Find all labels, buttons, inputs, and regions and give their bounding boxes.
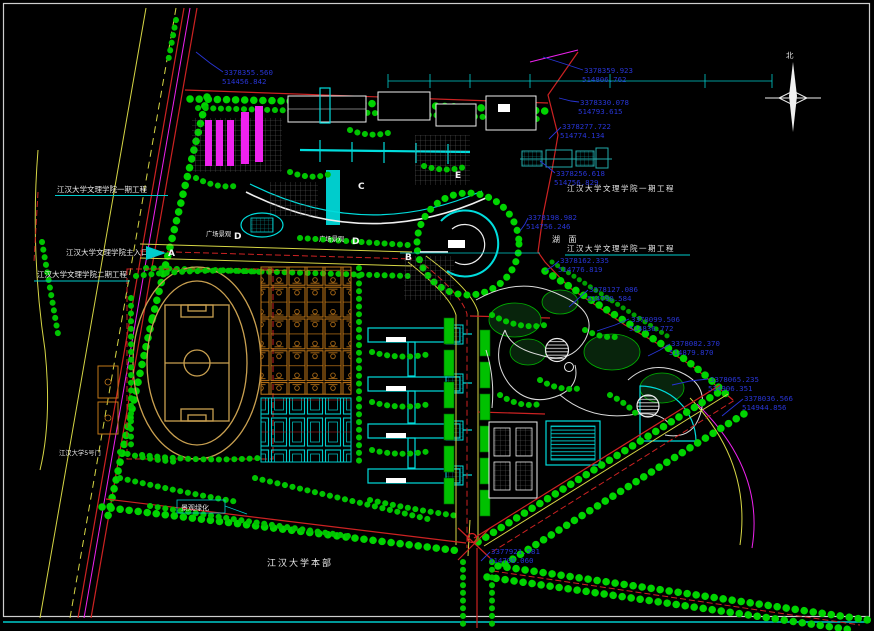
volleyball-courts [261,398,351,462]
marker-e: E [455,171,461,181]
marker-c: C [358,182,365,192]
svg-text:3378162.335: 3378162.335 [560,256,609,265]
plaza-label-1: 广场景观 [206,229,232,238]
garden [476,286,703,441]
cad-viewport: 北 [0,0,874,631]
svg-text:3378036.566: 3378036.566 [744,394,793,403]
pool-building [546,421,600,465]
marker-b: B [405,253,412,263]
svg-text:514944.856: 514944.856 [742,403,787,412]
small-court-1 [98,366,118,398]
svg-text:514836.772: 514836.772 [629,324,674,333]
coordinate-label: 3378127.086 514790.584 [569,285,638,307]
svg-text:514708.060: 514708.060 [489,556,534,565]
svg-text:3378198.982: 3378198.982 [528,213,577,222]
svg-text:3378355.560: 3378355.560 [224,68,273,77]
coordinate-label: 3378355.560 514456.842 [196,52,273,86]
svg-text:3378082.370: 3378082.370 [671,339,720,348]
svg-text:3378277.722: 3378277.722 [562,122,611,131]
svg-text:514776.819: 514776.819 [558,265,603,274]
coordinate-label: 3378036.566 514944.856 [722,394,793,416]
basketball-courts [261,267,351,394]
svg-text:3378330.078: 3378330.078 [580,98,629,107]
svg-text:3378256.618: 3378256.618 [556,169,605,178]
hall-block [326,170,340,225]
pavilion-1 [546,339,569,362]
svg-text:514774.134: 514774.134 [560,131,605,140]
south-buildings [489,421,600,498]
coordinate-label: 3378330.078 514793.615 [559,98,629,116]
svg-text:3378065.235: 3378065.235 [710,375,759,384]
phase2-left-label: 江汉大学文理学院二期工程 [37,269,127,279]
svg-text:3378127.086: 3378127.086 [589,285,638,294]
coordinate-label: 3378359.923 514806.762 [543,57,633,84]
svg-text:514790.584: 514790.584 [587,294,632,303]
coordinate-label: 3378065.235 514906.351 [672,375,759,393]
svg-text:514756.246: 514756.246 [526,222,571,231]
svg-text:514879.870: 514879.870 [669,348,714,357]
phase1-right-mid-label: 江汉大学文理学院一期工程 [567,243,675,253]
lake-label: 湖 面 [552,235,580,244]
greening-label: 景观绿化 [181,503,209,512]
pavilion-2 [637,395,659,417]
coordinate-label: 3378198.982 514756.246 [520,213,577,231]
teaching-building-3 [436,104,476,126]
svg-text:514793.615: 514793.615 [578,107,623,116]
coordinate-label: 3377921.581 514708.060 [481,547,540,565]
campus-gate [520,148,612,168]
north-compass-icon: 北 [765,51,821,132]
svg-text:3378359.923: 3378359.923 [584,66,633,75]
coordinate-label: 3378099.506 514836.772 [597,315,680,333]
marker-d1: D [234,232,241,242]
north-label: 北 [786,51,794,60]
stadium [98,267,273,459]
teaching-building-4 [486,96,536,130]
main-campus-label: 江汉大学本部 [267,557,333,569]
top-dimension-line [388,74,772,88]
marker-a: A [168,249,175,259]
svg-text:514906.351: 514906.351 [708,384,753,393]
phase1-right-top-label: 江汉大学文理学院一期工程 [567,183,675,193]
svg-text:514456.842: 514456.842 [222,77,267,86]
svg-text:3378099.506: 3378099.506 [631,315,680,324]
plaza-label-2: 广场景观 [319,234,345,243]
entrance-arrow-icon [146,246,166,260]
phase1-left-label: 江汉大学文理学院一期工程 [57,184,147,194]
svg-text:3377921.581: 3377921.581 [491,547,540,556]
teaching-building-2 [378,92,430,120]
drawing-canvas[interactable]: 北 [0,0,874,631]
main-entrance-label: 江汉大学文理学院主入口 [66,247,149,257]
gate5-label: 江汉大学5号门 [59,448,101,457]
classroom-building [489,422,537,498]
coordinate-label: 3378277.722 514774.134 [549,122,611,140]
compass-needle [789,62,797,132]
round-building [400,193,540,300]
marker-d2: D [352,237,359,247]
svg-text:514806.762: 514806.762 [582,75,627,84]
